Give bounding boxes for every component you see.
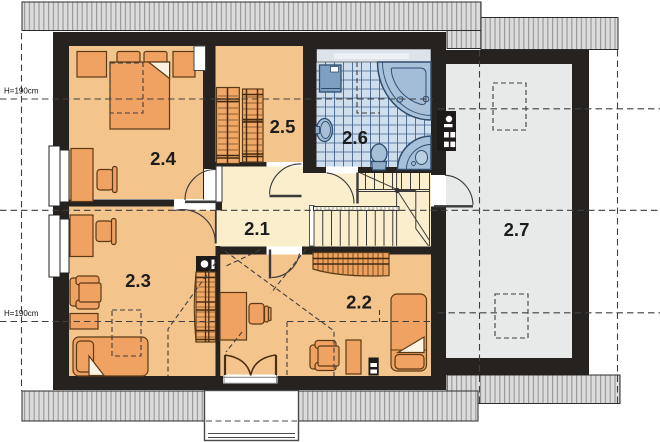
svg-text:2.3: 2.3 bbox=[125, 270, 151, 291]
svg-text:H=190cm: H=190cm bbox=[4, 87, 39, 96]
svg-text:2.4: 2.4 bbox=[150, 148, 176, 169]
svg-text:2.5: 2.5 bbox=[270, 116, 296, 137]
svg-text:2.2: 2.2 bbox=[346, 292, 372, 313]
svg-text:2.7: 2.7 bbox=[504, 219, 530, 240]
svg-text:2.1: 2.1 bbox=[244, 218, 270, 239]
svg-text:H=190cm: H=190cm bbox=[4, 309, 39, 318]
svg-text:2.6: 2.6 bbox=[342, 127, 368, 148]
